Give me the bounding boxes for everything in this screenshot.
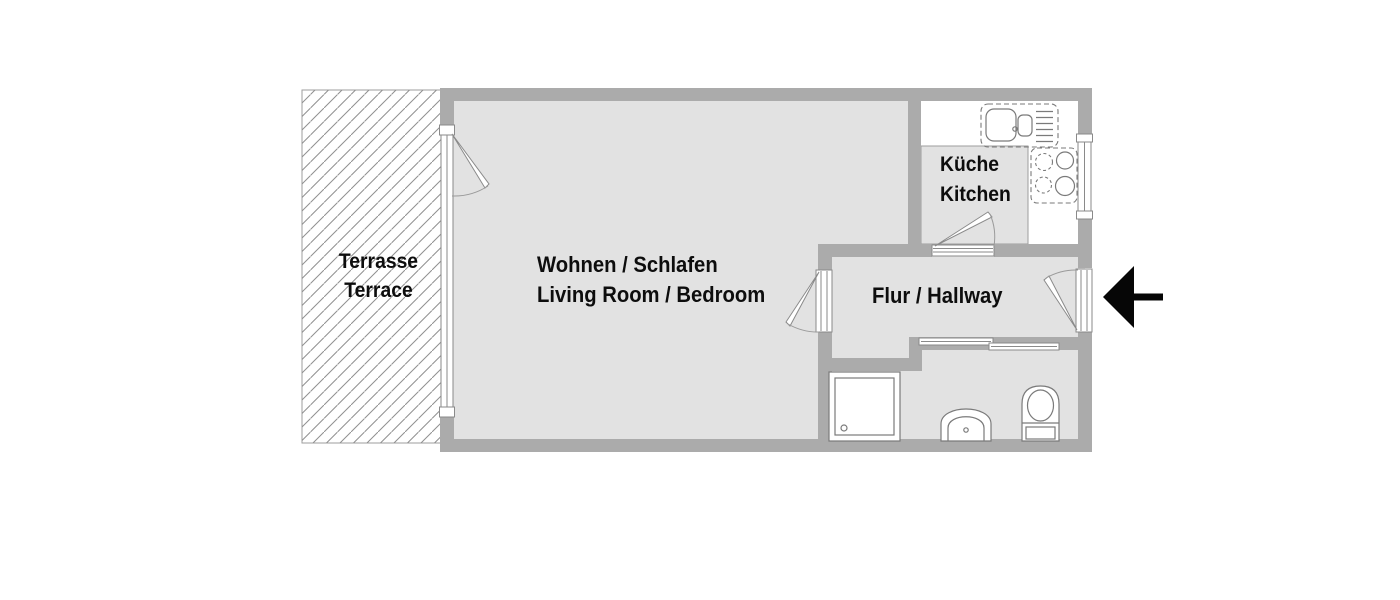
wall-hallway-top-right: [994, 244, 1092, 257]
terrace-label-de: Terrasse: [308, 247, 449, 276]
hallway-label-text: Flur / Hallway: [872, 282, 1002, 310]
toilet-symbol: [1022, 386, 1059, 441]
hallway-label: Flur / Hallway: [872, 282, 1002, 310]
wall-right-middle: [1078, 213, 1092, 268]
wall-left-lower: [440, 414, 454, 452]
wall-right-upper: [1078, 88, 1092, 137]
wall-bottom: [440, 439, 1092, 452]
living-bedroom-label: Wohnen / Schlafen Living Room / Bedroom: [537, 250, 765, 310]
wall-left-upper: [440, 88, 454, 128]
washbasin-symbol: [941, 409, 991, 441]
shower-symbol: [829, 372, 900, 441]
wall-right-lower: [1078, 332, 1092, 452]
entrance-arrow-icon: [1103, 266, 1163, 328]
wall-hallway-bottom: [818, 358, 922, 371]
living-bedroom-label-de: Wohnen / Schlafen: [537, 250, 765, 280]
terrace-label-en: Terrace: [308, 276, 449, 305]
wall-living-hall-upper: [818, 244, 832, 270]
floor-plan: Terrasse Terrace Wohnen / Schlafen Livin…: [0, 0, 1400, 600]
kitchen-window: [1077, 134, 1093, 219]
kitchen-label-en: Kitchen: [940, 180, 1011, 210]
terrace-label: Terrasse Terrace: [308, 247, 449, 305]
kitchen-label: Küche Kitchen: [940, 150, 1011, 210]
kitchen-label-de: Küche: [940, 150, 1011, 180]
wall-hallway-top-left: [818, 244, 932, 257]
wall-kitchen-left: [908, 88, 921, 257]
wall-top: [440, 88, 1092, 101]
living-bedroom-label-en: Living Room / Bedroom: [537, 280, 765, 310]
